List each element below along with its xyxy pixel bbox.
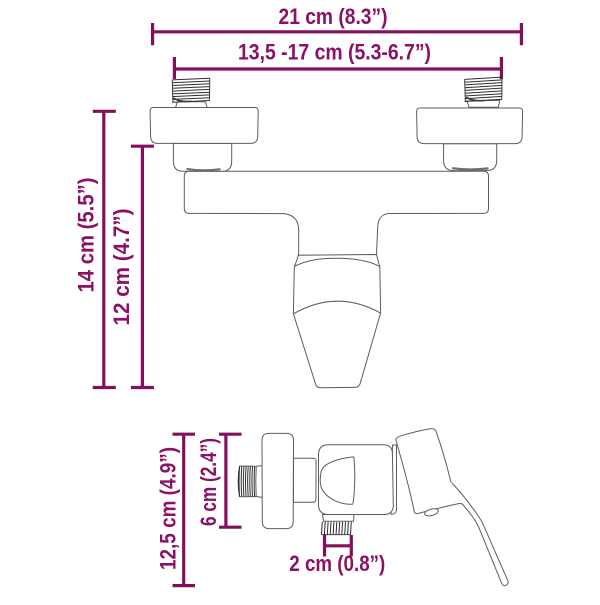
svg-text:12 cm (4.7”): 12 cm (4.7”)	[109, 209, 134, 326]
svg-text:12,5 cm (4.9”): 12,5 cm (4.9”)	[156, 447, 181, 570]
svg-text:6 cm (2.4”): 6 cm (2.4”)	[196, 438, 221, 526]
svg-text:2 cm (0.8”): 2 cm (0.8”)	[289, 551, 385, 576]
svg-text:21 cm (8.3”): 21 cm (8.3”)	[279, 4, 388, 29]
svg-text:14 cm (5.5”): 14 cm (5.5”)	[73, 178, 98, 293]
svg-text:13,5 -17 cm (5.3-6.7”): 13,5 -17 cm (5.3-6.7”)	[238, 40, 431, 65]
